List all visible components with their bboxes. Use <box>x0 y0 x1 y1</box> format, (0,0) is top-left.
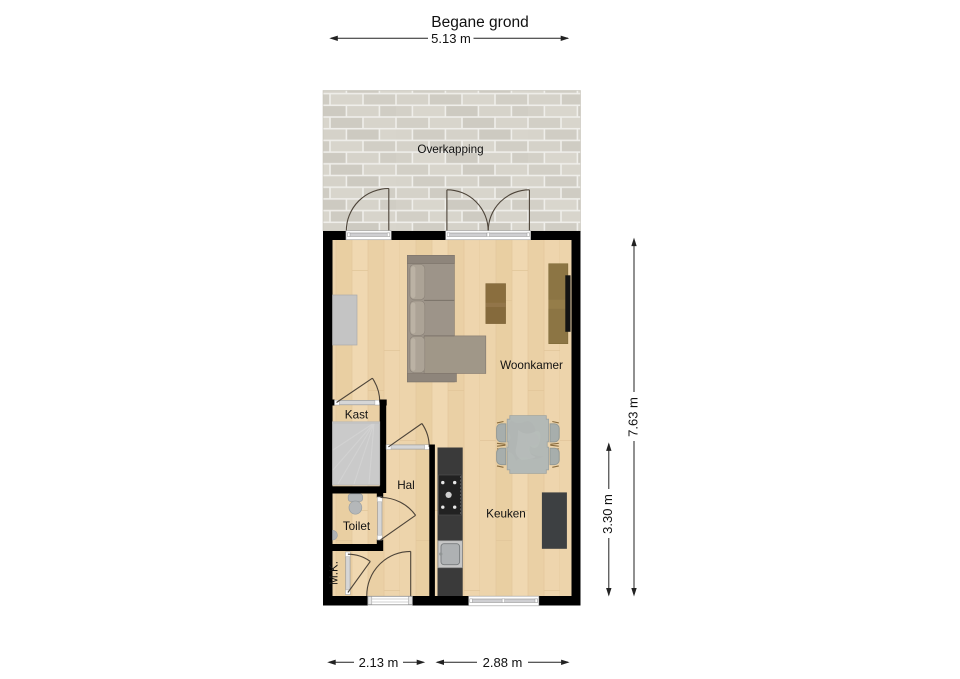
svg-text:7.63 m: 7.63 m <box>625 397 640 437</box>
svg-text:Toilet: Toilet <box>343 520 371 533</box>
svg-text:Keuken: Keuken <box>486 508 526 521</box>
svg-text:2.13 m: 2.13 m <box>359 655 399 670</box>
svg-text:Overkapping: Overkapping <box>417 143 483 156</box>
svg-text:2.88 m: 2.88 m <box>483 655 523 670</box>
svg-text:Hal: Hal <box>397 479 415 492</box>
svg-text:5.13 m: 5.13 m <box>431 31 471 46</box>
svg-text:Begane grond: Begane grond <box>431 14 528 31</box>
svg-text:Woonkamer: Woonkamer <box>500 359 563 372</box>
svg-text:3.30 m: 3.30 m <box>600 494 615 534</box>
svg-text:Kast: Kast <box>345 409 369 422</box>
svg-text:M.K.: M.K. <box>328 561 341 585</box>
